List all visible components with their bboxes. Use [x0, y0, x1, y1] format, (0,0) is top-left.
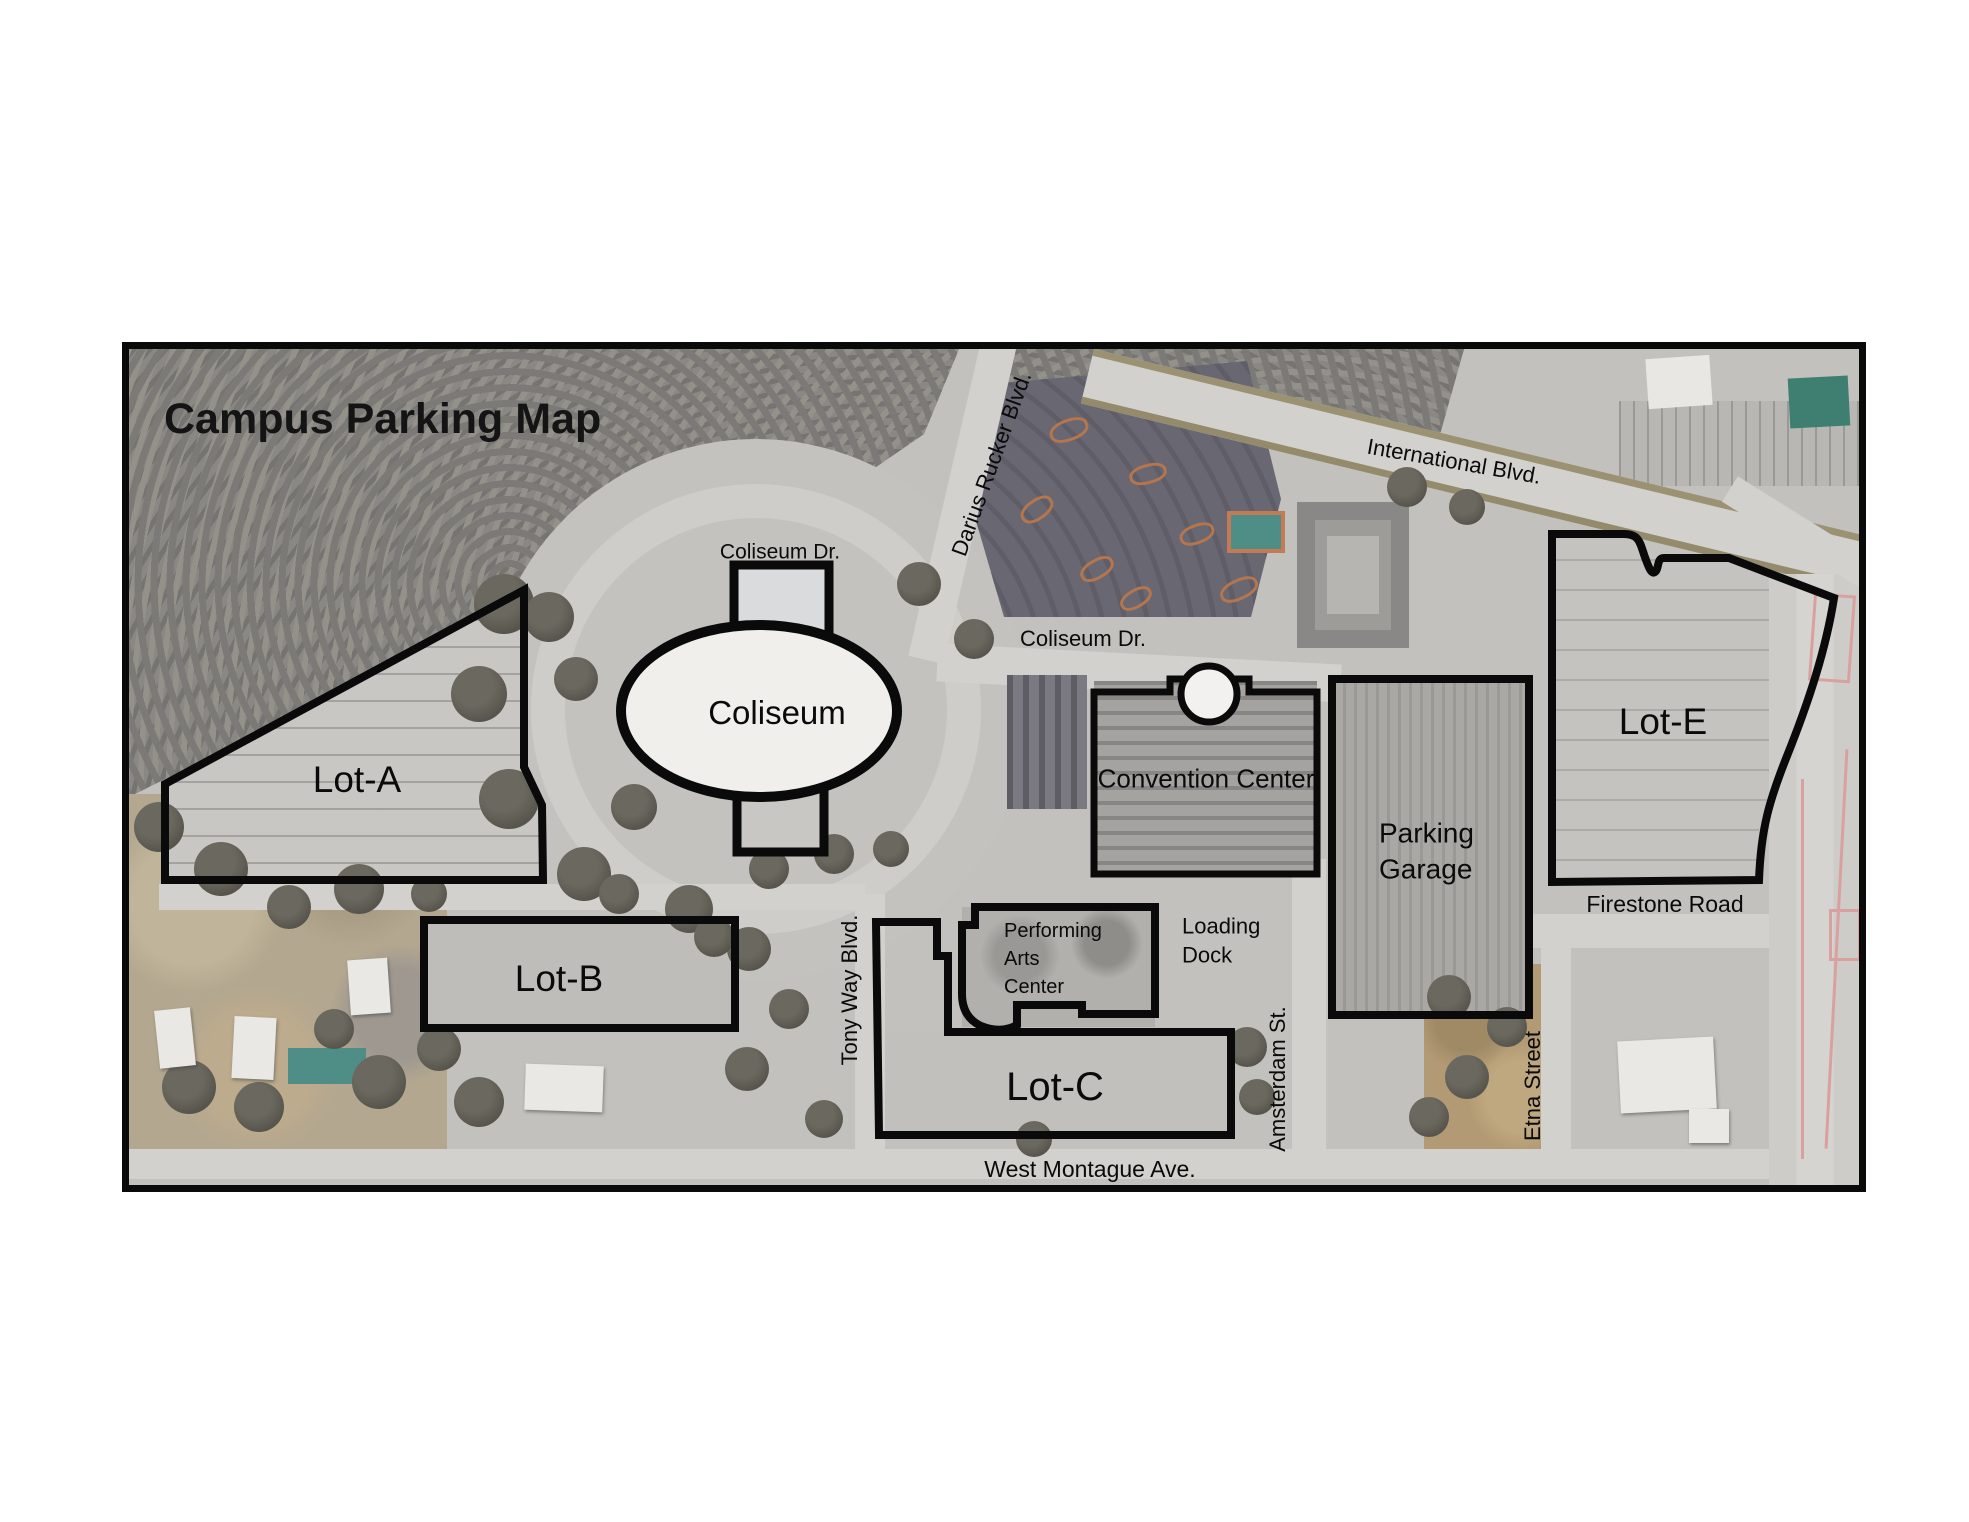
lot-c-label: Lot-C — [1006, 1063, 1104, 1111]
street-label-tony-way-blvd: Tony Way Blvd. — [837, 915, 863, 1066]
street-label-coliseum-dr-north: Coliseum Dr. — [720, 539, 840, 564]
lot-a-label: Lot-A — [313, 758, 401, 802]
street-label-amsterdam-st: Amsterdam St. — [1265, 1006, 1291, 1151]
convention-center-dome — [1181, 666, 1237, 722]
street-label-coliseum-dr-east: Coliseum Dr. — [1020, 626, 1146, 652]
street-label-west-montague-ave: West Montague Ave. — [984, 1156, 1195, 1184]
page-title: Campus Parking Map — [164, 395, 601, 444]
convention-center-label: Convention Center — [1098, 763, 1315, 794]
parking-garage-label: Parking Garage — [1379, 816, 1474, 889]
campus-parking-map-page: Coliseum Dr. Darius Rucker Blvd. Interna… — [0, 0, 1969, 1522]
street-label-firestone-road: Firestone Road — [1586, 891, 1743, 919]
coliseum-label: Coliseum — [708, 693, 846, 733]
performing-arts-center-label: Performing Arts Center — [1004, 917, 1102, 1001]
lot-b-label: Lot-B — [515, 957, 603, 1001]
aerial-map-canvas: Coliseum Dr. Darius Rucker Blvd. Interna… — [122, 342, 1866, 1192]
lot-a-outline — [165, 590, 543, 880]
lot-e-label: Lot-E — [1619, 700, 1707, 744]
street-label-etna-street: Etna Street — [1520, 1031, 1546, 1141]
loading-dock-label: Loading Dock — [1182, 912, 1260, 969]
